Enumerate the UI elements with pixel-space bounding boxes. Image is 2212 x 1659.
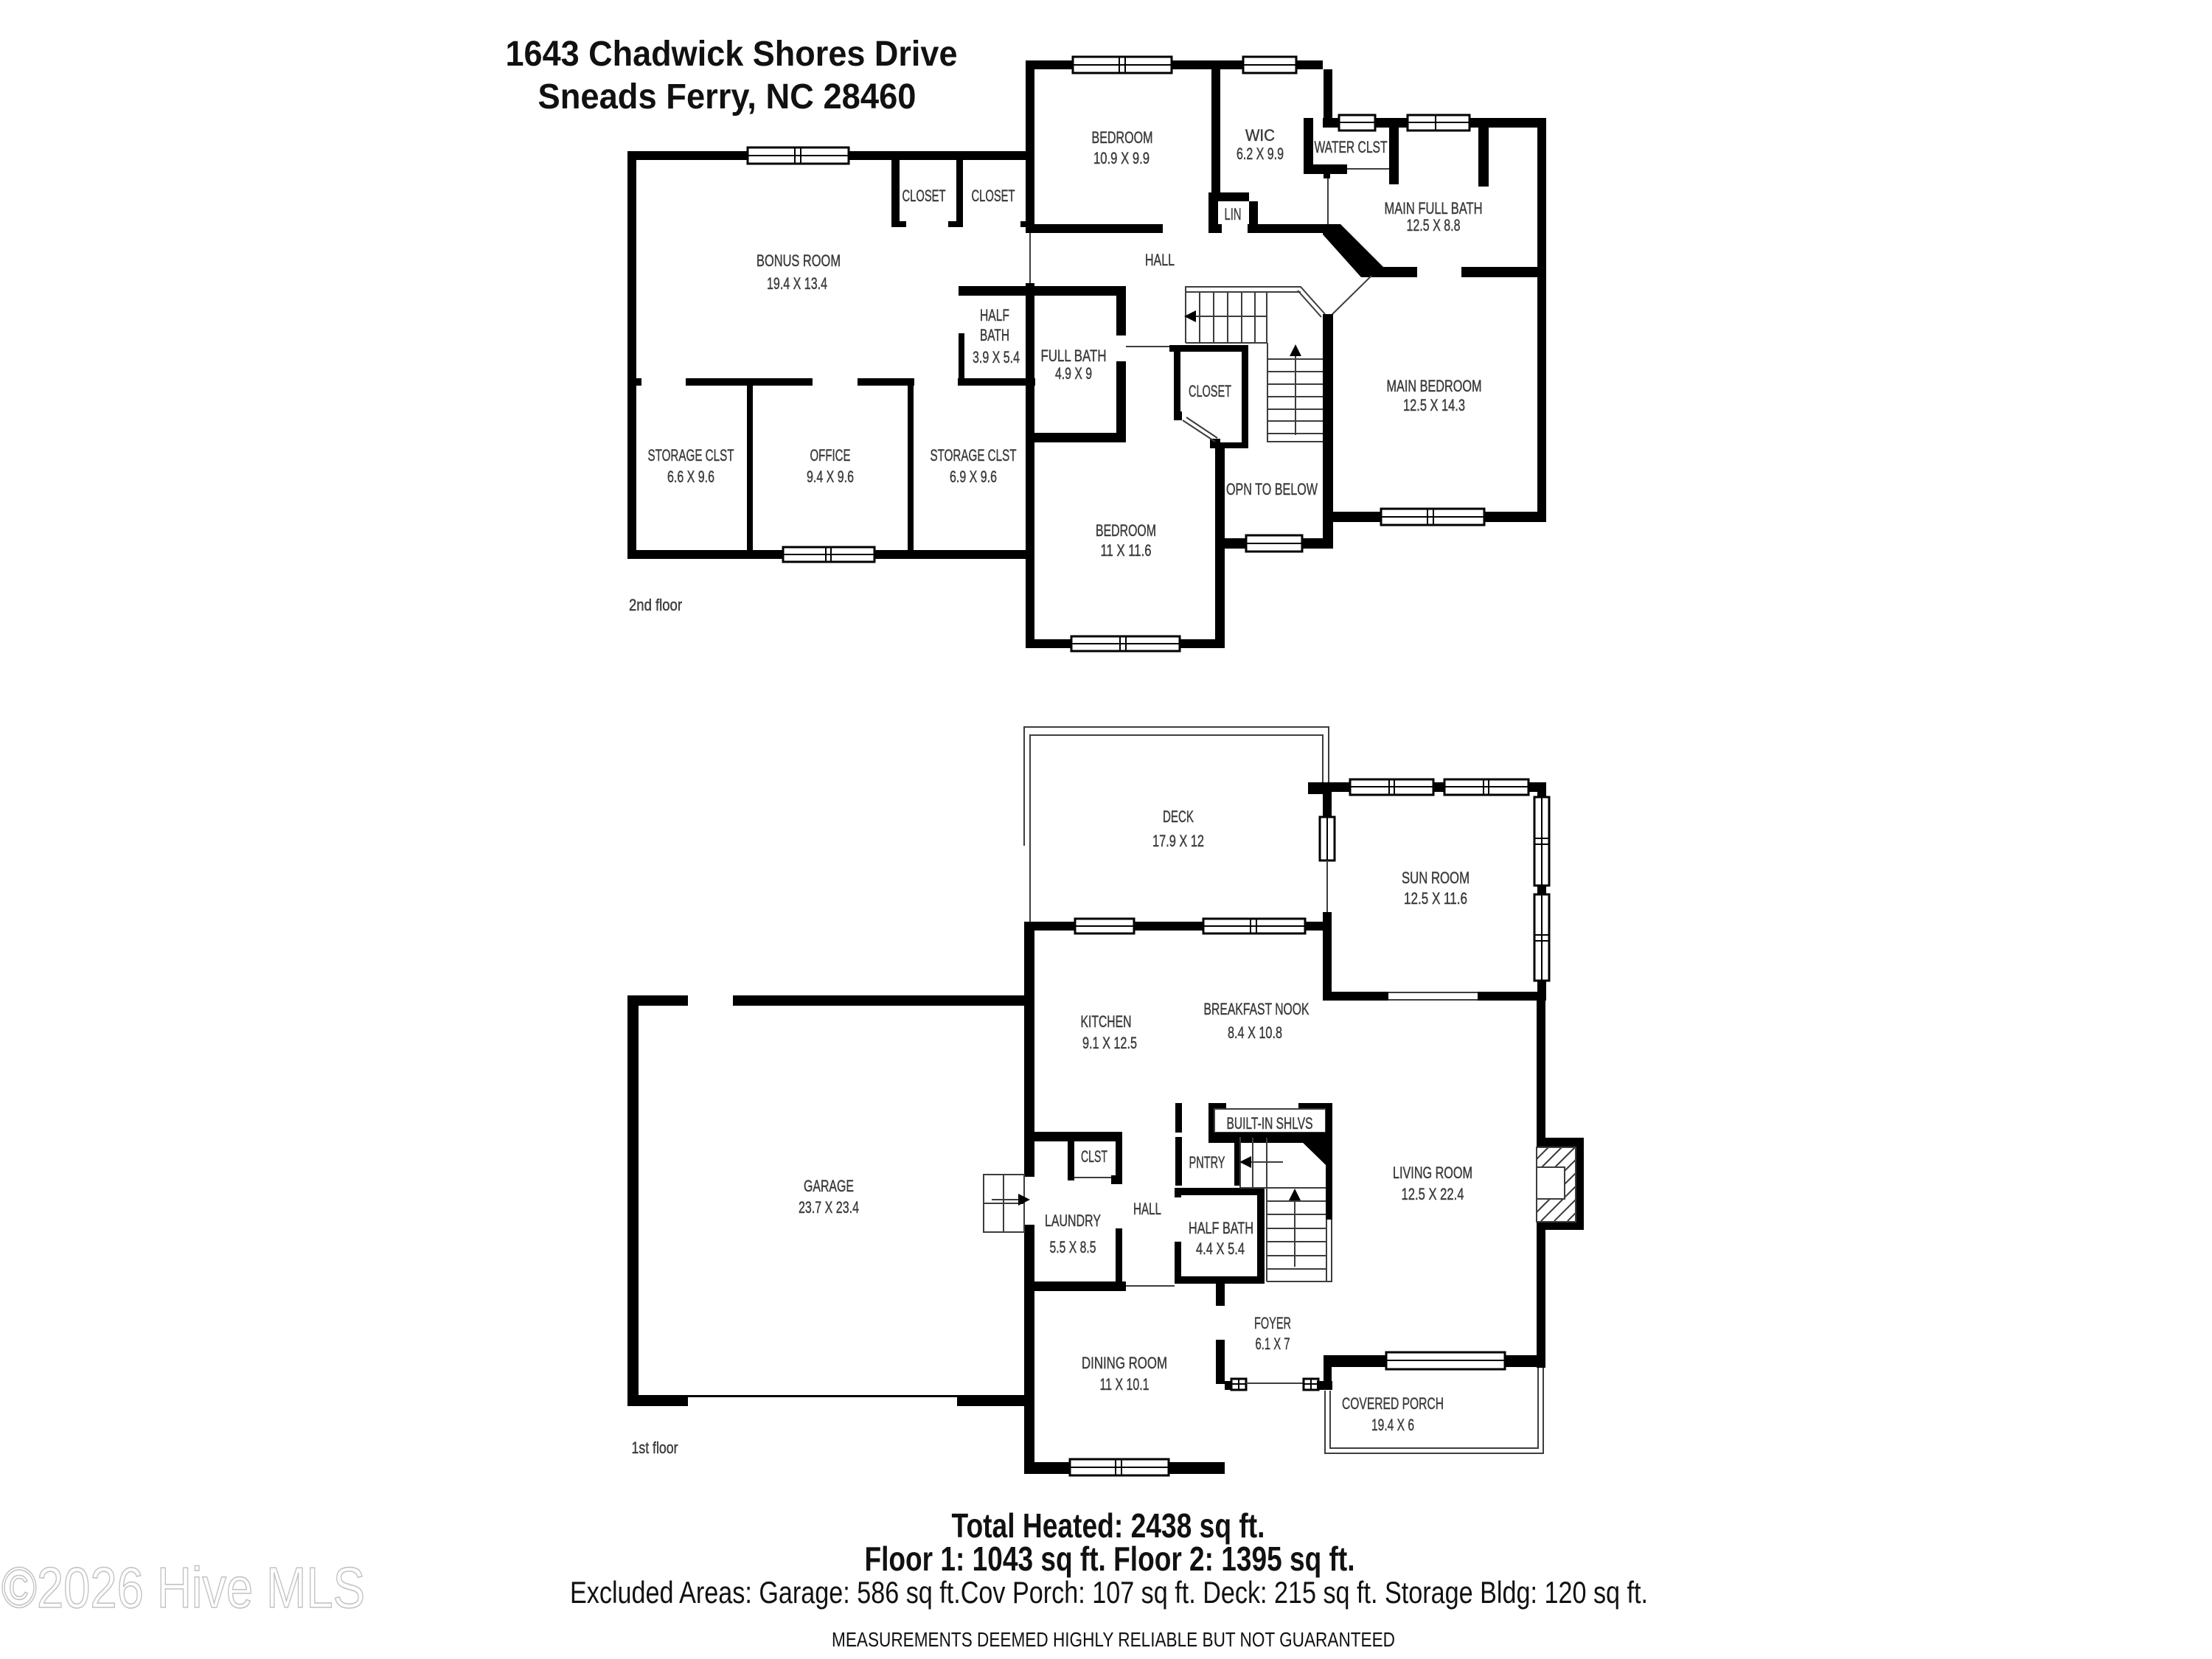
svg-text:MAIN FULL BATH: MAIN FULL BATH <box>1385 199 1483 218</box>
svg-text:19.4 X 6: 19.4 X 6 <box>1371 1416 1414 1434</box>
svg-text:3.9 X 5.4: 3.9 X 5.4 <box>973 348 1020 366</box>
svg-text:6.6 X 9.6: 6.6 X 9.6 <box>667 467 714 486</box>
svg-text:6.9 X 9.6: 6.9 X 9.6 <box>950 467 997 486</box>
svg-text:9.4 X 9.6: 9.4 X 9.6 <box>807 467 854 486</box>
svg-text:HALF: HALF <box>980 306 1009 324</box>
svg-text:4.9 X 9: 4.9 X 9 <box>1055 364 1092 383</box>
svg-text:OFFICE: OFFICE <box>810 446 851 465</box>
svg-text:CLOSET: CLOSET <box>972 187 1015 205</box>
svg-text:10.9 X 9.9: 10.9 X 9.9 <box>1093 149 1150 167</box>
svg-text:FULL BATH: FULL BATH <box>1041 347 1107 365</box>
svg-text:MEASUREMENTS DEEMED HIGHLY REL: MEASUREMENTS DEEMED HIGHLY RELIABLE BUT … <box>832 1628 1395 1651</box>
svg-text:©2026 Hive MLS: ©2026 Hive MLS <box>1 1555 365 1620</box>
svg-text:SUN ROOM: SUN ROOM <box>1402 869 1470 887</box>
svg-text:5.5 X 8.5: 5.5 X 8.5 <box>1050 1238 1096 1256</box>
svg-text:BEDROOM: BEDROOM <box>1096 521 1156 540</box>
svg-text:Excluded Areas: Garage: 586 sq: Excluded Areas: Garage: 586 sq ft.Cov Po… <box>570 1575 1648 1610</box>
svg-text:9.1 X 12.5: 9.1 X 12.5 <box>1082 1034 1137 1052</box>
svg-text:CLOSET: CLOSET <box>1189 382 1231 400</box>
svg-text:PNTRY: PNTRY <box>1189 1153 1225 1172</box>
svg-text:8.4 X 10.8: 8.4 X 10.8 <box>1228 1023 1282 1042</box>
svg-text:MAIN BEDROOM: MAIN BEDROOM <box>1387 377 1482 395</box>
svg-text:STORAGE CLST: STORAGE CLST <box>931 446 1017 465</box>
svg-text:KITCHEN: KITCHEN <box>1081 1012 1132 1031</box>
svg-text:HALL: HALL <box>1133 1200 1161 1218</box>
svg-text:LAUNDRY: LAUNDRY <box>1045 1211 1101 1230</box>
svg-text:12.5 X 22.4: 12.5 X 22.4 <box>1402 1185 1464 1203</box>
svg-text:BEDROOM: BEDROOM <box>1092 128 1153 147</box>
svg-text:DECK: DECK <box>1163 807 1194 826</box>
svg-text:BONUS ROOM: BONUS ROOM <box>757 251 841 270</box>
svg-text:Sneads Ferry, NC 28460: Sneads Ferry, NC 28460 <box>538 77 917 116</box>
svg-text:4.4 X 5.4: 4.4 X 5.4 <box>1196 1239 1245 1258</box>
svg-text:STORAGE CLST: STORAGE CLST <box>648 446 734 465</box>
svg-text:12.5 X 11.6: 12.5 X 11.6 <box>1404 889 1467 908</box>
svg-text:COVERED PORCH: COVERED PORCH <box>1342 1394 1444 1413</box>
svg-text:WIC: WIC <box>1245 126 1275 145</box>
svg-text:CLOSET: CLOSET <box>902 187 946 205</box>
svg-text:WATER CLST: WATER CLST <box>1315 138 1388 156</box>
svg-text:HALL: HALL <box>1145 251 1175 269</box>
svg-text:LIN: LIN <box>1225 205 1242 223</box>
svg-text:12.5 X 8.8: 12.5 X 8.8 <box>1407 216 1461 234</box>
svg-text:OPN TO BELOW: OPN TO BELOW <box>1226 480 1318 498</box>
svg-text:LIVING ROOM: LIVING ROOM <box>1393 1164 1472 1182</box>
svg-text:CLST: CLST <box>1081 1147 1107 1166</box>
svg-text:23.7 X 23.4: 23.7 X 23.4 <box>799 1198 859 1217</box>
svg-text:11 X 10.1: 11 X 10.1 <box>1100 1375 1150 1394</box>
svg-text:BREAKFAST NOOK: BREAKFAST NOOK <box>1204 1000 1310 1018</box>
svg-text:6.2 X 9.9: 6.2 X 9.9 <box>1237 145 1284 163</box>
svg-text:BATH: BATH <box>980 326 1009 344</box>
svg-text:17.9 X 12: 17.9 X 12 <box>1152 832 1204 850</box>
svg-text:2nd floor: 2nd floor <box>629 596 682 614</box>
svg-text:1643 Chadwick Shores Drive: 1643 Chadwick Shores Drive <box>506 35 958 74</box>
svg-text:BUILT-IN SHLVS: BUILT-IN SHLVS <box>1227 1114 1313 1133</box>
svg-text:19.4 X 13.4: 19.4 X 13.4 <box>767 274 827 293</box>
svg-text:11 X 11.6: 11 X 11.6 <box>1101 541 1152 560</box>
svg-text:FOYER: FOYER <box>1254 1314 1291 1332</box>
svg-text:12.5 X 14.3: 12.5 X 14.3 <box>1403 396 1465 414</box>
svg-text:HALF BATH: HALF BATH <box>1189 1219 1253 1237</box>
svg-text:1st floor: 1st floor <box>632 1439 678 1457</box>
svg-text:GARAGE: GARAGE <box>804 1177 854 1195</box>
svg-text:DINING ROOM: DINING ROOM <box>1082 1354 1167 1372</box>
svg-text:6.1 X 7: 6.1 X 7 <box>1256 1335 1290 1353</box>
svg-text:Floor 1: 1043 sq ft. Floor 2:: Floor 1: 1043 sq ft. Floor 2: 1395 sq ft… <box>865 1540 1355 1578</box>
